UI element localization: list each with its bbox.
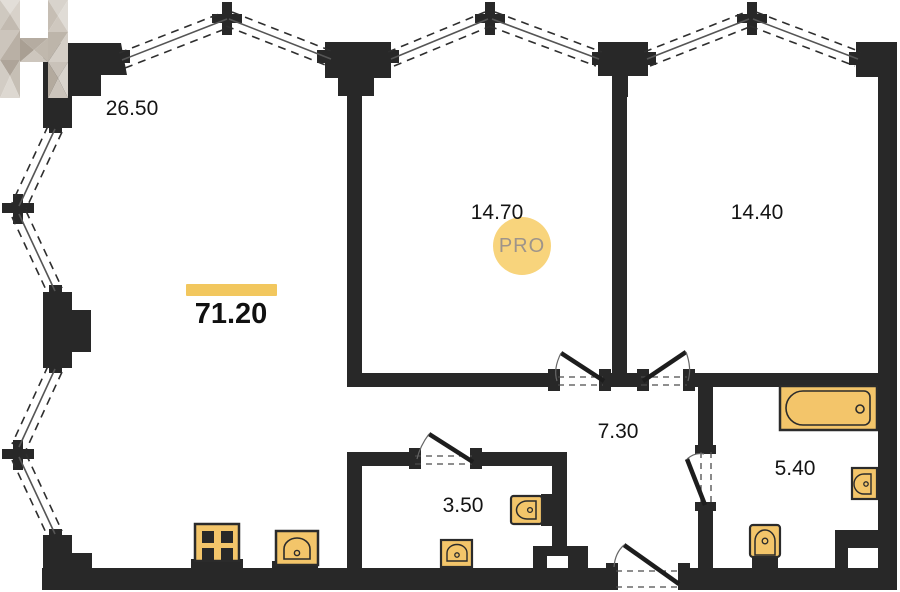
window-tick [49,285,62,294]
wall-corridor-top-left [347,373,558,387]
total-area: 71.20 [183,284,279,329]
wall-left-mid [43,292,72,368]
bathroom-sink-icon [852,468,877,499]
door-jamb [548,369,560,391]
total-area-accent-bar [186,284,277,296]
door-jamb [678,563,690,590]
watermark-h-logo [0,0,68,98]
door-leaf-entrance [624,545,679,584]
wall-corner-top-right [856,42,897,95]
pro-badge: PRO [493,217,551,275]
wall-bathroom-left-lower [698,505,713,568]
wall-bottom-right-span [682,568,897,590]
window-dashed-lines [12,12,861,537]
wall-pier-top-2 [598,42,648,97]
wc-toilet-icon [511,494,554,526]
windows [12,12,861,537]
stove-icon [191,524,243,568]
wall-bedroom1-bedroom2 [612,97,627,387]
wall-wc-top-left [347,452,413,466]
wall-wc-right [552,452,567,546]
door-leaf-bathroom [687,459,705,505]
window-mullion [2,449,34,459]
room-area-bedroom-2: 14.40 [722,201,792,225]
floor-plan: PRO 71.20 26.50 14.70 14.40 7.30 3.50 5.… [0,0,900,592]
h-letter-facets [0,0,68,98]
room-area-bedroom-1: 14.70 [462,201,532,225]
room-area-bathroom: 5.40 [765,457,825,481]
room-area-living-kitchen: 26.50 [97,97,167,121]
wall-corner-bottom-left [43,535,92,570]
wall-pier-top-1 [325,42,391,96]
door-jamb [470,448,482,469]
wall-wc-duct [533,546,588,568]
window-mullion [2,203,34,213]
window-tick [49,124,62,133]
total-area-value: 71.20 [183,300,279,329]
kitchen-sink-icon [272,531,318,568]
wall-left-mid-bump [72,310,91,352]
pro-badge-label: PRO [499,235,545,258]
bathroom-toilet-icon [750,525,780,568]
door-jamb [606,563,618,590]
wall-bathroom-duct [835,530,880,568]
wall-right [878,56,897,590]
bathtub-icon [780,386,877,430]
wall-wc-left [347,452,362,568]
wc-sink-icon [441,540,472,569]
window-tick [49,364,62,373]
wall-bottom-left-span [42,568,614,590]
wall-living-bedroom1 [347,96,362,387]
room-area-wc: 3.50 [433,494,493,518]
wall-bathroom-left-upper [698,387,713,452]
door-leaf-wc [429,434,473,462]
room-area-hallway: 7.30 [588,420,648,444]
door-jamb [695,445,716,454]
